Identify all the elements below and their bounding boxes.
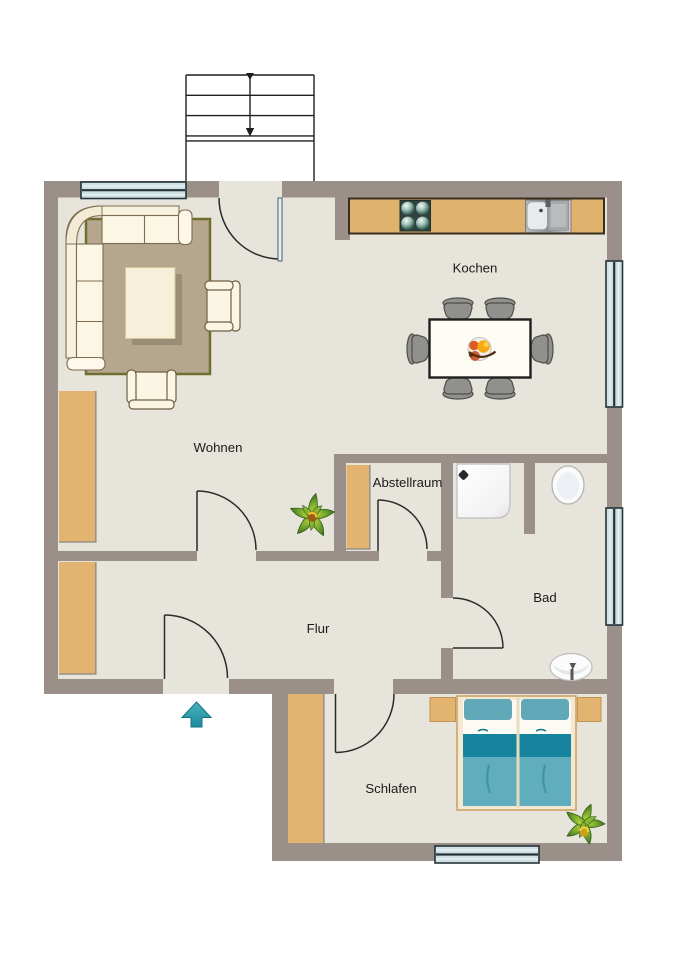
svg-text:Bad: Bad bbox=[533, 590, 556, 605]
svg-text:Flur: Flur bbox=[307, 621, 330, 636]
svg-text:Schlafen: Schlafen bbox=[365, 781, 416, 796]
svg-text:Abstellraum: Abstellraum bbox=[373, 475, 443, 490]
svg-text:Kochen: Kochen bbox=[453, 261, 498, 276]
svg-text:Wohnen: Wohnen bbox=[194, 440, 243, 455]
